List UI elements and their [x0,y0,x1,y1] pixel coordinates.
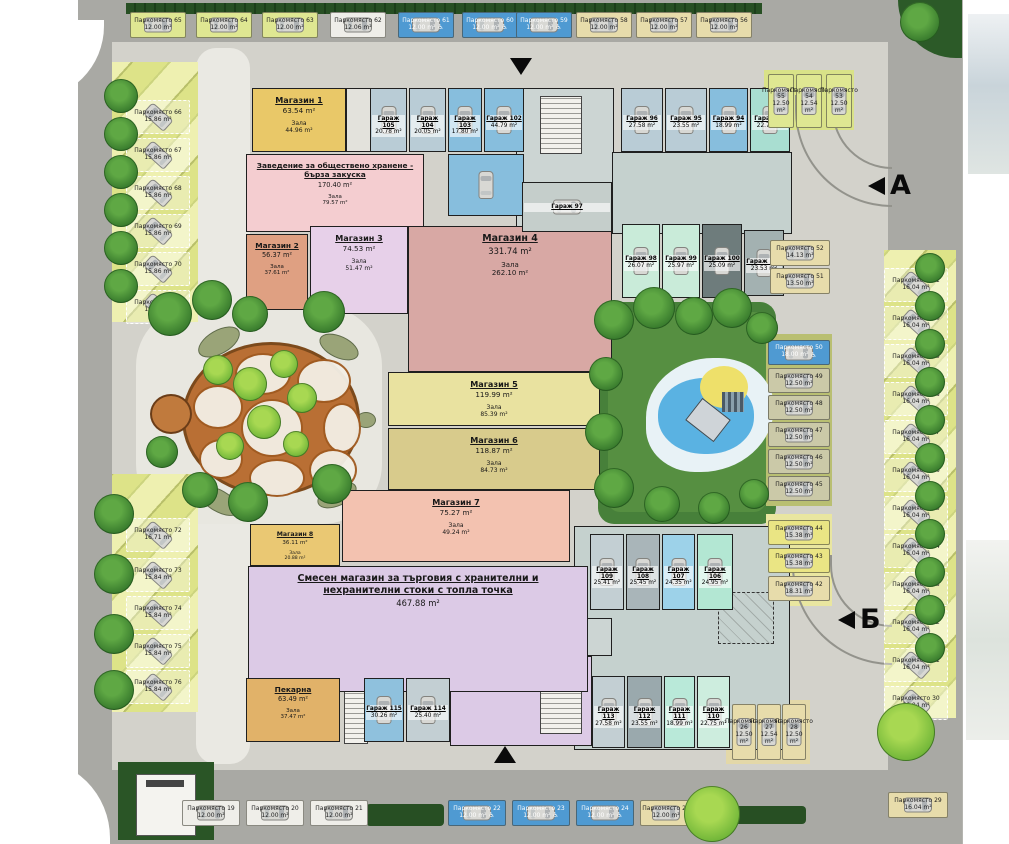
shop-name: Магазин 6 [470,435,518,445]
garage-name: Гараж 111 [666,707,693,720]
shop-label: Заведение за обществено хранене - бърза … [252,161,417,231]
tree-icon [915,633,945,663]
parking-stall-label: Паркомясто 27 12.54 m² [758,705,780,759]
parking-stall: Паркомясто 20 12.00 m² [246,800,304,826]
garage-box: Гараж 111 18.99 m² [664,676,695,748]
tree-icon [915,519,945,549]
parking-stall-label: Паркомясто 21 12.00 m² [311,801,367,825]
tree-icon [146,436,178,468]
entrance-marker-a: А [868,170,911,201]
parking-stall: Паркомясто 19 12.00 m² [182,800,240,826]
shop-hall-label: Зала [486,460,501,467]
garage-box: Гараж 109 25.41 m² [590,534,624,610]
tree-icon [283,431,309,457]
tree-icon [182,472,218,508]
tree-icon [915,329,945,359]
shop-name: Магазин 1 [275,95,323,105]
tree-icon [104,155,138,189]
parking-stall: Паркомясто 60 12.00 m² ♿ [462,12,518,38]
garage-area: 20.78 m² [375,129,401,136]
parking-stall-label: Паркомясто 46 12.50 m² [769,450,829,473]
parking-stall-area: 12.50 m² [785,381,812,388]
parking-stall-label: Паркомясто 76 15.84 m² [127,671,189,703]
shop-label: Магазин 5 119.99 m² Зала 85.39 m² [470,379,518,425]
tree-icon [312,464,352,504]
parking-stall: Паркомясто 72 16.71 m² [126,518,190,552]
shop-room: Магазин 8 36.11 m² Зала 20.88 m² [250,524,340,566]
garage-label: Гараж 103 17.80 m² [450,115,480,137]
parking-stall-label: Паркомясто 75 15.84 m² [127,635,189,667]
shop-room: Магазин 1 63.54 m² Зала 44.96 m² [252,88,346,152]
garage-label: Гараж 106 24.95 m² [699,566,731,588]
parking-stall-label: Паркомясто 19 12.00 m² [183,801,239,825]
parking-stall-area: 12.50 m² [785,408,812,415]
shop-name: Заведение за обществено хранене - бърза … [252,161,417,180]
shop-hall-area: 49.24 m² [442,529,469,536]
garage-label: Гараж 99 25.97 m² [664,255,698,270]
shop-room: Заведение за обществено хранене - бърза … [246,154,424,232]
parking-stall-area: 15.84 m² [144,575,171,582]
tree-icon [675,297,713,335]
parking-stall-label: Паркомясто 53 12.50 m² [827,75,851,127]
parking-stall-number: Паркомясто 53 [820,88,858,101]
parking-stall-label: Паркомясто 74 15.84 m² [127,597,189,629]
tree-icon [270,350,298,378]
parking-stall-label: Паркомясто 61 12.00 m² ♿ [399,13,453,37]
shop-label: Магазин 6 118.87 m² Зала 84.73 m² [470,435,518,489]
parking-stall-area: 12.00 m² [590,25,617,32]
garage-label: Гараж 114 25.40 m² [408,705,448,720]
garage-box: Гараж 104 20.05 m² [409,88,446,152]
tree-icon [644,486,680,522]
tree-icon [192,280,232,320]
garage-area: 20.05 m² [414,129,440,136]
shop-room: Магазин 6 118.87 m² Зала 84.73 m² [388,428,600,490]
shop-name: Пекарна [275,685,312,694]
parking-stall-label: Паркомясто 50 18.00 m² ♿ [769,341,829,364]
stairs-a [540,96,582,154]
parking-stall-label: Паркомясто 65 12.00 m² [131,13,185,37]
parking-stall-area: 16.04 m² [904,805,931,812]
parking-stall-label: Паркомясто 64 12.00 m² [197,13,251,37]
parking-stall: Паркомясто 76 15.84 m² [126,670,190,704]
tree-icon [746,312,778,344]
shop-hall-area: 37.47 m² [280,714,305,720]
parking-stall-label: Паркомясто 48 12.50 m² [769,396,829,419]
shop-hall-area: 85.39 m² [480,411,507,418]
parking-stall: Паркомясто 26 12.50 m² [732,704,756,760]
tree-icon [633,287,675,329]
shop-label: Магазин 2 56.37 m² Зала 37.61 m² [255,241,299,309]
shop-hall-label: Зала [291,120,306,127]
parking-stall-area: 12.00 m² [710,25,737,32]
tree-icon [303,291,345,333]
shop-hall-area: 84.73 m² [480,467,507,474]
parking-stall-area: 12.00 m² [459,813,486,820]
garage-area: 26.07 m² [628,263,654,270]
shop-name: Смесен магазин за търговия с хранителни … [259,573,577,597]
tree-icon [585,413,623,451]
parking-stall: Паркомясто 24 12.00 m² ♿ [576,800,634,826]
garage-label: Гараж 110 22.75 m² [699,706,728,728]
parking-stall-label: Паркомясто 55 12.50 m² [769,75,793,127]
parking-stall: Паркомясто 47 12.50 m² [768,422,830,447]
parking-stall: Паркомясто 64 12.00 m² [196,12,252,38]
shop-area: 119.99 m² [475,390,512,399]
tree-icon [594,468,634,508]
garage-label: Гараж 107 24.35 m² [664,566,693,588]
tree-icon [915,291,945,321]
left-arrow-icon [838,611,855,629]
parking-stall-label: Паркомясто 26 12.50 m² [733,705,755,759]
parking-stall-area: 18.00 m² [781,352,808,359]
garage-box: Гараж 97 [522,182,612,232]
garage-name: Гараж 98 [625,256,657,263]
garage-name: Гараж 100 [704,256,740,263]
section-arrow-bottom [494,746,516,763]
parking-stall-area: 15.38 m² [785,533,812,540]
parking-stall: Паркомясто 22 12.00 m² ♿ [448,800,506,826]
parking-stall-label: Паркомясто 45 12.50 m² [769,477,829,500]
shop-area: 331.74 m² [488,246,531,256]
garage-name: Гараж 108 [628,567,658,580]
parking-stall-area: 15.86 m² [144,155,171,162]
garage-name: Гараж 103 [450,116,480,129]
garage-a-hall [612,152,792,234]
stairwell-top [346,88,372,152]
shop-name: Магазин 8 [277,531,314,539]
parking-stall: Паркомясто 51 13.50 m² [770,268,830,294]
parking-stall: Паркомясто 27 12.54 m² [757,704,781,760]
entrance-letter-a: А [890,170,911,201]
tree-icon [915,253,945,283]
garage-name: Гараж 107 [664,567,693,580]
garage-name: Гараж 110 [699,707,728,720]
garage-box: Гараж 113 27.58 m² [592,676,625,748]
garage-area: 24.95 m² [702,580,728,587]
parking-stall: Паркомясто 23 12.00 m² ♿ [512,800,570,826]
garage-box: Гараж 110 22.75 m² [697,676,730,748]
playground-climber [722,392,744,412]
shop-name: Магазин 4 [482,233,538,245]
shop-name: Магазин 5 [470,379,518,389]
parking-stall-area: 12.00 m² [650,25,677,32]
parking-stall-area: 12.00 m² [325,813,352,820]
tree-icon [94,670,134,710]
shop-hall-area: 44.96 m² [285,127,312,134]
parking-stall: Паркомясто 50 18.00 m² ♿ [768,340,830,365]
shop-area: 74.53 m² [343,244,376,253]
garage-label: Гараж 115 30.26 m² [366,705,402,720]
parking-stall: Паркомясто 53 12.50 m² [826,74,852,128]
garage-box: Гараж 105 20.78 m² [370,88,407,152]
shop-area: 170.40 m² [318,181,352,189]
tree-icon [739,479,769,509]
parking-stall-area: 15.86 m² [144,231,171,238]
garage-name: Гараж 109 [592,567,622,580]
shop-area: 75.27 m² [440,508,473,517]
garage-label: Гараж 104 20.05 m² [411,115,444,137]
shop-hall-area: 262.10 m² [492,269,528,277]
parking-stall-area: 12.50 m² [733,732,755,745]
shop-name: Магазин 3 [335,233,383,243]
entrance-letter-b: Б [860,604,881,635]
garage-name: Гараж 102 [486,116,522,123]
parking-stall-area: 16.71 m² [144,535,171,542]
shop-label: Магазин 1 63.54 m² Зала 44.96 m² [275,95,323,151]
garage-box: Гараж 96 27.58 m² [621,88,663,152]
parking-stall-area: 12.50 m² [785,435,812,442]
parking-stall: Паркомясто 42 18.31 m² [768,576,830,601]
garage-area: 27.58 m² [629,123,655,130]
parking-stall: Паркомясто 58 12.00 m² [576,12,632,38]
shop-name: Магазин 7 [432,497,480,507]
tree-icon [877,703,935,761]
garage-name: Гараж 112 [629,707,660,720]
tree-icon [915,367,945,397]
tree-icon [684,786,740,842]
tree-icon [589,357,623,391]
garage-label: Гараж 112 23.55 m² [629,706,660,728]
parking-stall-area: 18.31 m² [785,589,812,596]
parking-stall-label: Паркомясто 43 15.38 m² [769,549,829,572]
parking-stall-label: Паркомясто 49 12.50 m² [769,369,829,392]
shop-hall-area: 20.88 m² [285,556,306,561]
parking-stall-area: 12.54 m² [797,101,821,114]
shop-area: 56.37 m² [262,251,292,259]
parking-stall-area: 12.50 m² [769,101,793,114]
garage-label: Гараж 102 44.79 m² [486,115,522,130]
parking-stall-area: 12.00 m² [210,25,237,32]
tree-icon [915,405,945,435]
tree-icon [915,443,945,473]
parking-stall: Паркомясто 54 12.54 m² [796,74,822,128]
parking-stall: Паркомясто 63 12.00 m² [262,12,318,38]
garage-area: 24.35 m² [665,580,691,587]
parking-stall: Паркомясто 75 15.84 m² [126,634,190,668]
garage-name: Гараж 95 [670,116,702,123]
garage-area: 30.26 m² [371,713,397,720]
turtle-shell-cell [323,403,361,453]
wheelchair-icon: ♿ [556,24,562,32]
parking-stall: Паркомясто 57 12.00 m² [636,12,692,38]
parking-stall: Паркомясто 46 12.50 m² [768,449,830,474]
section-arrow-top [510,58,532,75]
parking-stall-area: 13.50 m² [786,281,813,288]
parking-stall-label: Паркомясто 63 12.00 m² [263,13,317,37]
parking-stall-area: 12.00 m² [472,25,499,32]
parking-stall-area: 15.86 m² [144,117,171,124]
parking-stall-label: Паркомясто 42 18.31 m² [769,577,829,600]
parking-stall-area: 12.00 m² [276,25,303,32]
tree-icon [94,614,134,654]
parking-stall: Паркомясто 28 12.50 m² [782,704,806,760]
garage-area: 18.99 m² [666,721,692,728]
tree-icon [247,405,281,439]
garage-label: Гараж 98 26.07 m² [624,255,658,270]
parking-stall-label: Паркомясто 59 12.00 m² ♿ [517,13,571,37]
tree-icon [94,494,134,534]
shop-hall-label: Зала [486,404,501,411]
shop-area: 63.54 m² [283,106,316,115]
parking-stall: Паркомясто 21 12.00 m² [310,800,368,826]
tree-icon [228,482,268,522]
parking-stall-area: 12.50 m² [827,101,851,114]
shop-room: Пекарна 63.49 m² Зала 37.47 m² [246,678,340,742]
parking-stall-area: 12.00 m² [526,25,553,32]
parking-stall: Паркомясто 43 15.38 m² [768,548,830,573]
garage-area: 25.09 m² [709,263,735,270]
garage-box: Гараж 95 23.55 m² [665,88,707,152]
parking-stall-area: 12.00 m² [261,813,288,820]
tree-icon [915,595,945,625]
parking-stall-label: Паркомясто 62 12.06 m² [331,13,385,37]
tree-icon [594,300,634,340]
tree-icon [104,79,138,113]
shop-hall-area: 51.47 m² [345,265,372,272]
tree-icon [216,432,244,460]
parking-stall: Паркомясто 56 12.00 m² [696,12,752,38]
parking-stall: Паркомясто 73 15.84 m² [126,558,190,592]
garage-name: Гараж 104 [411,116,444,129]
parking-stall-label: Паркомясто 44 15.38 m² [769,521,829,544]
shop-label: Магазин 8 36.11 m² Зала 20.88 m² [277,531,314,565]
utility-sign-text-bar [146,780,184,787]
parking-stall-area: 12.00 m² [197,813,224,820]
parking-stall-label: Паркомясто 28 12.50 m² [783,705,805,759]
parking-stall-area: 12.06 m² [344,25,371,32]
garage-area: 23.55 m² [631,721,657,728]
garage-label: Гараж 108 25.45 m² [628,566,658,588]
shop-room: Магазин 5 119.99 m² Зала 85.39 m² [388,372,600,426]
parking-stall-area: 12.00 m² [587,813,614,820]
parking-stall: Паркомясто 45 12.50 m² [768,476,830,501]
shop-hall-label: Зала [351,258,366,265]
tree-icon [915,481,945,511]
parking-stall-label: Паркомясто 57 12.00 m² [637,13,691,37]
wheelchair-icon: ♿ [811,352,817,360]
tree-icon [94,554,134,594]
garage-area: 27.58 m² [595,721,621,728]
shop-room: Магазин 7 75.27 m² Зала 49.24 m² [342,490,570,562]
shop-room: Магазин 4 331.74 m² Зала 262.10 m² [408,226,612,372]
parking-stall-area: 12.50 m² [785,462,812,469]
garage-name: Гараж 96 [626,116,658,123]
garage-box [448,154,524,216]
parking-stall-label: Паркомясто 24 12.00 m² ♿ [577,801,633,825]
parking-stall-area: 12.00 m² [408,25,435,32]
garage-area: 18.99 m² [715,123,741,130]
parking-stall: Паркомясто 59 12.00 m² ♿ [516,12,572,38]
garage-area: 25.97 m² [668,263,694,270]
tree-icon [104,117,138,151]
parking-stall-area: 12.00 m² [652,813,679,820]
parking-stall-area: 15.84 m² [144,651,171,658]
garage-area: 25.40 m² [415,713,441,720]
parking-stall-area: 15.86 m² [144,269,171,276]
parking-stall-area: 15.38 m² [785,561,812,568]
parking-stall: Паркомясто 49 12.50 m² [768,368,830,393]
shop-label: Смесен магазин за търговия с хранителни … [259,573,577,691]
garage-label: Гараж 95 23.55 m² [667,115,705,130]
garage-label: Гараж 113 27.58 m² [594,706,623,728]
parking-stall-area: 15.84 m² [144,613,171,620]
tree-icon [900,2,940,42]
garage-box: Гараж 103 17.80 m² [448,88,482,152]
left-arrow-icon [868,177,885,195]
garage-label: Гараж 109 25.41 m² [592,566,622,588]
garage-box: Гараж 99 25.97 m² [662,224,700,298]
parking-stall-label: Паркомясто 56 12.00 m² [697,13,751,37]
shop-label: Пекарна 63.49 m² Зала 37.47 m² [275,685,312,741]
garage-box: Гараж 115 30.26 m² [364,678,404,742]
tree-icon [698,492,730,524]
parking-stall-area: 16.04 m² [902,665,929,672]
parking-stall: Паркомясто 29 16.04 m² [888,792,948,818]
garage-label: Гараж 100 25.09 m² [704,255,740,270]
parking-stall-label: Паркомясто 29 16.04 m² [889,793,947,817]
parking-stall-label: Паркомясто 47 12.50 m² [769,423,829,446]
parking-stall-label: Паркомясто 23 12.00 m² ♿ [513,801,569,825]
parking-stall: Паркомясто 44 15.38 m² [768,520,830,545]
garage-label: Гараж 111 18.99 m² [666,706,693,728]
tree-icon [287,383,317,413]
garage-label: Гараж 94 18.99 m² [711,115,746,130]
wheelchair-icon: ♿ [438,24,444,32]
garage-box: Гараж 108 25.45 m² [626,534,660,610]
tree-icon [233,367,267,401]
garage-area: 25.45 m² [630,580,656,587]
garage-area: 17.80 m² [452,129,478,136]
parking-stall-area: 15.86 m² [144,193,171,200]
car-icon [479,171,494,199]
wheelchair-icon: ♿ [489,812,495,820]
garage-area: 25.41 m² [594,580,620,587]
garage-name: Гараж 99 [665,256,697,263]
garage-area: 44.79 m² [491,123,517,130]
wheelchair-icon: ♿ [553,812,559,820]
shop-area: 467.88 m² [396,598,439,608]
garage-label: Гараж 105 20.78 m² [372,115,405,137]
garage-box: Гараж 112 23.55 m² [627,676,662,748]
parking-stall-area: 12.54 m² [758,732,780,745]
tree-icon [104,231,138,265]
shop-hall-area: 37.61 m² [264,270,289,276]
garage-name: Гараж 97 [551,204,583,211]
garage-box: Гараж 102 44.79 m² [484,88,524,152]
shop-label: Магазин 4 331.74 m² Зала 262.10 m² [482,233,538,371]
tree-icon [104,193,138,227]
parking-stall: Паркомясто 74 15.84 m² [126,596,190,630]
garage-name: Гараж 113 [594,707,623,720]
parking-stall: Паркомясто 61 12.00 m² ♿ [398,12,454,38]
garage-label: Гараж 97 [524,203,610,212]
parking-stall-label: Паркомясто 22 12.00 m² ♿ [449,801,505,825]
shop-hall-label: Зала [448,522,463,529]
shop-area: 36.11 m² [282,540,307,546]
shop-label: Магазин 7 75.27 m² Зала 49.24 m² [432,497,480,561]
parking-stall-label: Паркомясто 20 12.00 m² [247,801,303,825]
hedge-bottom-left [366,804,444,826]
tree-icon [232,296,268,332]
parking-stall: Паркомясто 62 12.06 m² [330,12,386,38]
parking-stall-label: Паркомясто 51 13.50 m² [771,269,829,293]
parking-stall: Паркомясто 48 12.50 m² [768,395,830,420]
parking-stall-label: Паркомясто 60 12.00 m² ♿ [463,13,517,37]
parking-stall-area: 12.00 m² [144,25,171,32]
parking-stall-area: 12.00 m² [523,813,550,820]
shop-hall-label: Зала [501,261,519,269]
